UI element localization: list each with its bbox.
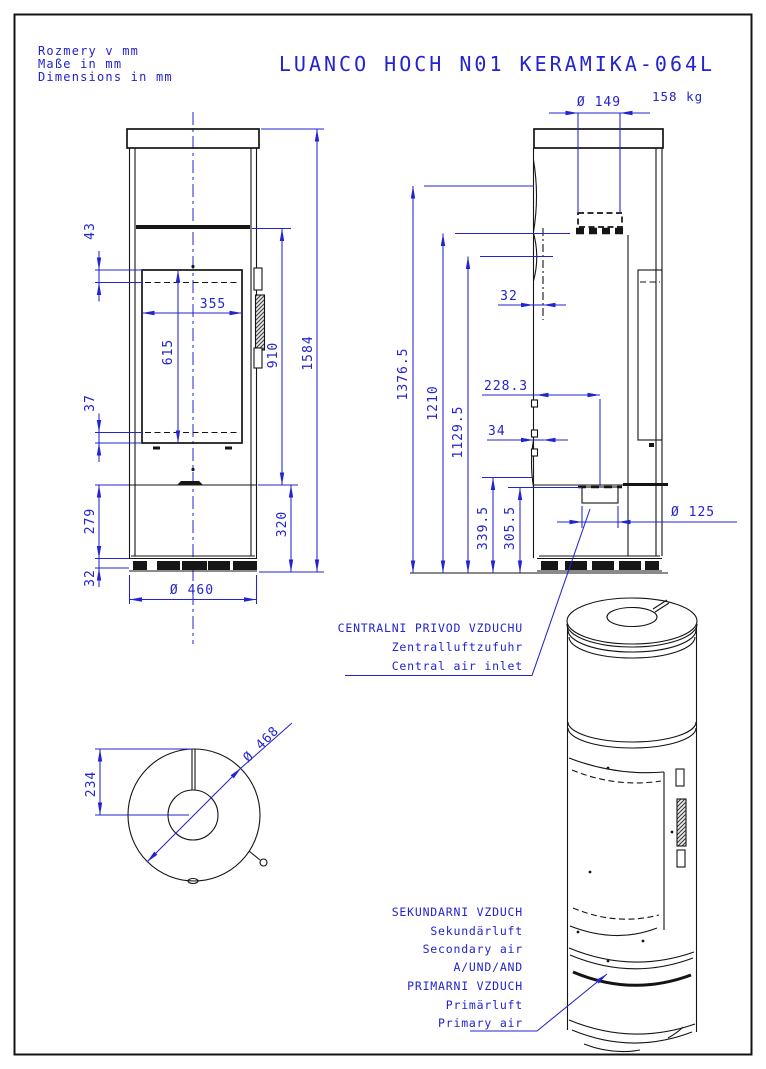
side-air-inlet-stub xyxy=(582,487,618,503)
dim-glass-width: 355 xyxy=(200,297,226,312)
front-view-dimensions: 43 37 279 32 355 615 910 1584 320 xyxy=(83,129,324,604)
front-door-handle xyxy=(254,268,265,368)
persp-flue-hole xyxy=(607,608,657,627)
air-note-line6: Primärluft xyxy=(446,998,523,1012)
air-note-line2: Sekundärluft xyxy=(430,924,523,938)
dim-offset-top: 43 xyxy=(83,222,98,240)
dim-offset-bottom: 37 xyxy=(83,394,98,412)
units-note-line3: Dimensions in mm xyxy=(38,70,173,84)
side-rear-shield xyxy=(638,270,662,440)
central-air-line2: Zentralluftzufuhr xyxy=(392,640,523,654)
dim-pedestal-height: 279 xyxy=(83,508,98,534)
front-door-glass xyxy=(142,270,242,443)
sheet-border xyxy=(15,15,752,1055)
dim-glass-offset: 32 xyxy=(500,289,518,304)
drawing-title: LUANCO HOCH N01 KERAMIKA-064L xyxy=(279,52,715,76)
side-view xyxy=(410,129,668,573)
secondary-primary-air-annotation: SEKUNDARNI VZDUCH Sekundärluft Secondary… xyxy=(392,905,607,1031)
dim-body-diameter: Ø 460 xyxy=(170,583,214,598)
dim-flue-diameter: Ø 149 xyxy=(577,95,621,110)
units-note-line1: Rozmery v mm xyxy=(38,44,139,58)
dim-inlet-rear-offset: 228.3 xyxy=(484,379,528,394)
dim-inlet-height: 305.5 xyxy=(503,506,518,550)
air-note-line4: A/UND/AND xyxy=(453,960,523,974)
dim-upper-air-height: 1129.5 xyxy=(451,406,466,459)
top-view-handle-knob xyxy=(260,859,267,866)
air-note-line5: PRIMARNI VZDUCH xyxy=(407,979,523,993)
side-top-plate xyxy=(534,129,663,148)
dim-flue-rear-height: 1210 xyxy=(426,385,441,420)
dim-flue-top-height: 1376.5 xyxy=(396,348,411,401)
dim-module-height: 910 xyxy=(266,342,281,368)
perspective-view xyxy=(567,598,697,1052)
units-note-line2: Maße in mm xyxy=(38,57,122,71)
dim-radius: 234 xyxy=(84,771,99,797)
persp-top-plate xyxy=(567,598,697,644)
dim-inlet-diameter: Ø 125 xyxy=(671,505,715,520)
dim-glass-height: 615 xyxy=(161,339,176,365)
central-air-annotation: CENTRALNI PRIVOD VZDUCHU Zentralluftzufu… xyxy=(338,509,590,676)
side-flue-connector xyxy=(578,213,622,227)
air-note-line3: Secondary air xyxy=(423,942,523,956)
technical-drawing-canvas: Rozmery v mm Maße in mm Dimensions in mm… xyxy=(0,0,766,1069)
drawing-sheet: Rozmery v mm Maße in mm Dimensions in mm… xyxy=(0,0,766,1069)
dim-lever-height: 339.5 xyxy=(476,506,491,550)
central-air-line3: Central air inlet xyxy=(392,659,523,673)
air-note-line1: SEKUNDARNI VZDUCH xyxy=(392,905,523,919)
dim-total-height: 1584 xyxy=(301,335,316,370)
header: Rozmery v mm Maße in mm Dimensions in mm… xyxy=(38,44,715,84)
dim-base-height: 32 xyxy=(83,569,98,587)
side-view-dimensions: Ø 149 158 kg 1376.5 1210 1129.5 32 228.3… xyxy=(396,89,737,573)
dim-plinth-height: 320 xyxy=(275,511,290,537)
dim-lever-offset: 34 xyxy=(488,424,506,439)
dim-diameter: Ø 468 xyxy=(241,724,283,766)
persp-door-handle xyxy=(676,769,686,867)
top-view: 234 Ø 468 xyxy=(84,723,292,884)
weight-label: 158 kg xyxy=(652,89,703,104)
air-note-line7: Primary air xyxy=(438,1016,523,1030)
central-air-line1: CENTRALNI PRIVOD VZDUCHU xyxy=(338,621,523,635)
front-view xyxy=(127,112,265,644)
